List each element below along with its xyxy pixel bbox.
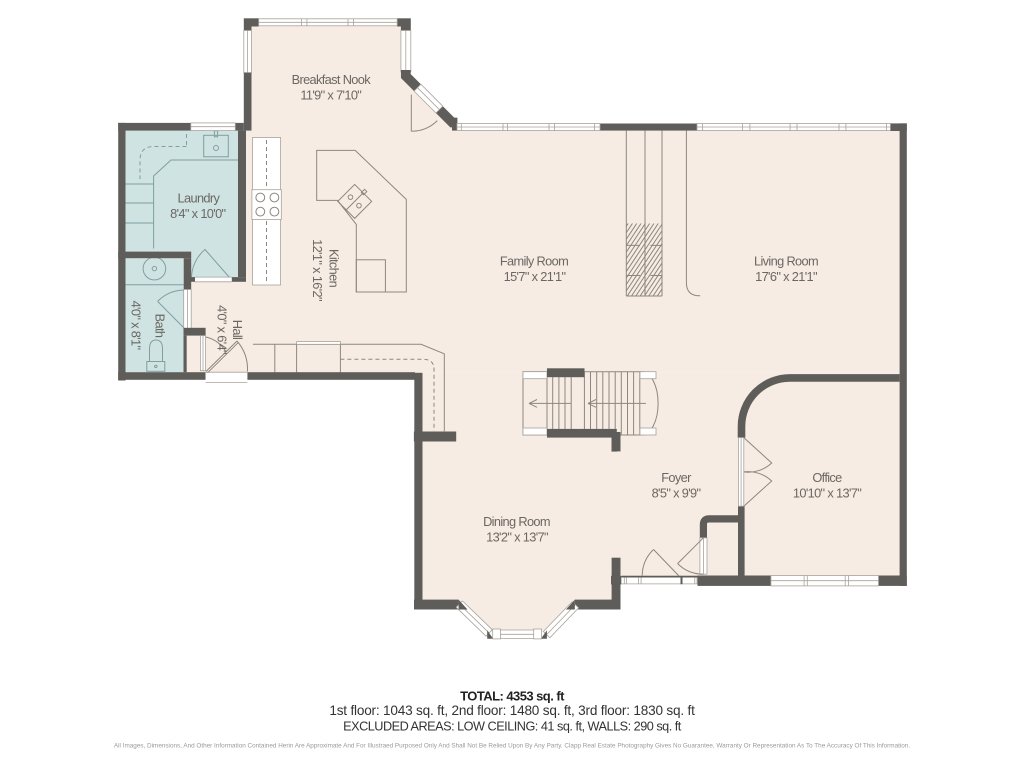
svg-text:Breakfast Nook: Breakfast Nook	[292, 72, 372, 87]
svg-text:13'2" x 13'7": 13'2" x 13'7"	[486, 530, 548, 545]
svg-text:10'10" x 13'7": 10'10" x 13'7"	[793, 486, 861, 501]
svg-text:1st floor: 1043 sq. ft, 2nd fl: 1st floor: 1043 sq. ft, 2nd floor: 1480 …	[329, 703, 695, 718]
svg-text:17'6" x 21'1": 17'6" x 21'1"	[755, 269, 817, 284]
svg-text:All Images, Dimensions, And Ot: All Images, Dimensions, And Other Inform…	[114, 743, 910, 750]
svg-text:Laundry: Laundry	[178, 191, 221, 206]
svg-text:Hall: Hall	[230, 320, 245, 339]
svg-text:4'0" x 6'4": 4'0" x 6'4"	[215, 305, 230, 354]
svg-text:Office: Office	[812, 470, 842, 485]
svg-text:EXCLUDED AREAS: LOW CEILING: 4: EXCLUDED AREAS: LOW CEILING: 41 sq. ft, …	[343, 720, 682, 734]
svg-text:Dining Room: Dining Room	[483, 514, 550, 529]
svg-text:Family Room: Family Room	[500, 254, 568, 269]
svg-text:Bath: Bath	[153, 314, 168, 338]
svg-text:TOTAL: 4353 sq. ft: TOTAL: 4353 sq. ft	[460, 689, 565, 704]
svg-text:Kitchen: Kitchen	[327, 249, 342, 288]
svg-text:8'5" x 9'9": 8'5" x 9'9"	[652, 486, 701, 501]
svg-text:Living Room: Living Room	[754, 254, 818, 269]
svg-text:4'0" x 8'1": 4'0" x 8'1"	[129, 301, 144, 350]
svg-text:Foyer: Foyer	[661, 470, 692, 485]
svg-text:12'1" x 16'2": 12'1" x 16'2"	[310, 239, 325, 301]
svg-text:8'4" x 10'0": 8'4" x 10'0"	[170, 206, 225, 221]
svg-text:15'7" x 21'1": 15'7" x 21'1"	[504, 269, 566, 284]
svg-text:11'9" x 7'10": 11'9" x 7'10"	[300, 88, 361, 103]
